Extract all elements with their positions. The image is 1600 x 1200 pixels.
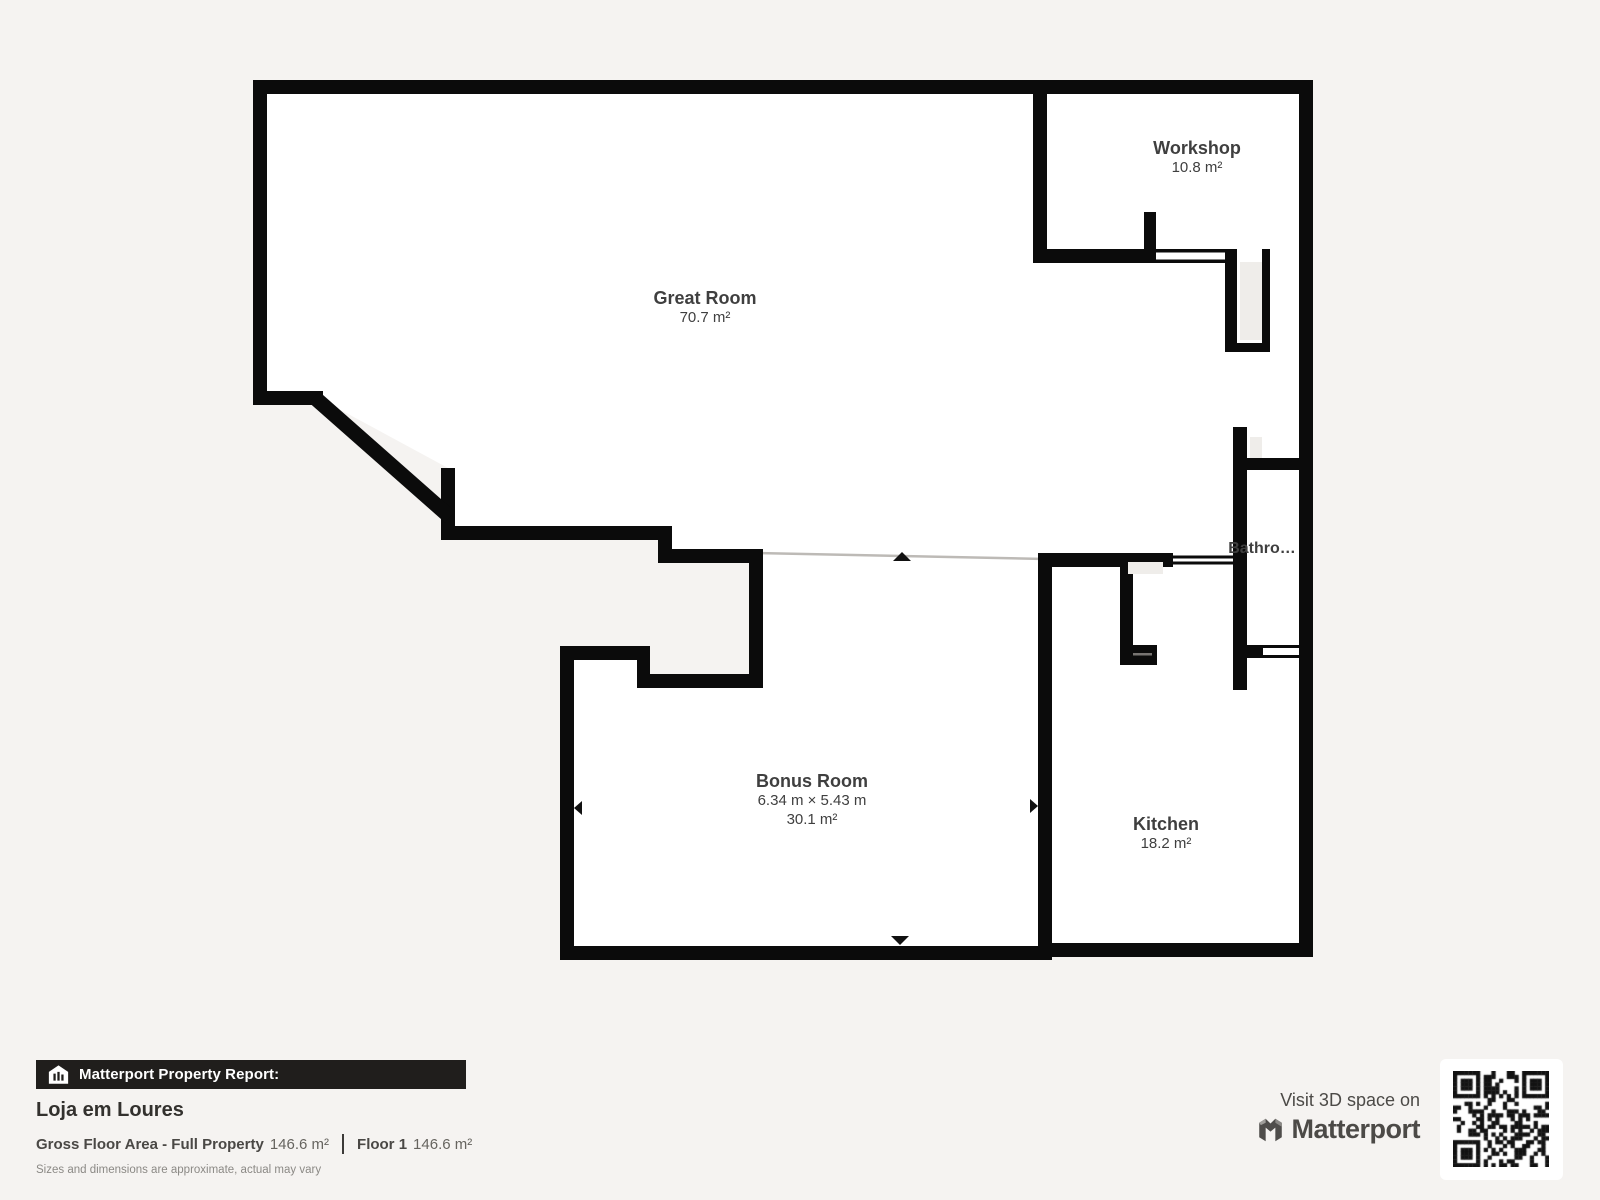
room-name: Great Room <box>653 288 756 308</box>
gross-floor-area-value: 146.6 m² <box>270 1136 329 1153</box>
room-name: Kitchen <box>1133 814 1199 834</box>
report-header-label: Matterport Property Report: <box>79 1066 279 1083</box>
gross-floor-area-label: Gross Floor Area - Full Property <box>36 1136 264 1153</box>
bonus-room-fill <box>572 556 1045 946</box>
room-area: 30.1 m² <box>756 810 868 829</box>
qr-card <box>1440 1059 1563 1180</box>
room-area: 10.8 m² <box>1153 158 1241 177</box>
divider <box>342 1134 344 1154</box>
room-label-bonus-room: Bonus Room 6.34 m × 5.43 m 30.1 m² <box>756 771 868 829</box>
room-dimensions: 6.34 m × 5.43 m <box>756 791 868 810</box>
kitchen-fill <box>1052 560 1299 946</box>
room-area: 70.7 m² <box>653 308 756 327</box>
disclaimer-text: Sizes and dimensions are approximate, ac… <box>36 1164 321 1176</box>
visit-3d-text: Visit 3D space on <box>1256 1090 1421 1111</box>
room-label-great-room: Great Room 70.7 m² <box>653 288 756 327</box>
brand-block: Visit 3D space on Matterport <box>1256 1090 1421 1145</box>
matterport-m-icon <box>1256 1116 1285 1144</box>
floorplan <box>0 0 1600 1200</box>
property-name: Loja em Loures <box>36 1099 184 1122</box>
qr-code <box>1453 1071 1549 1167</box>
room-area: 18.2 m² <box>1133 834 1199 853</box>
room-name: Bathro… <box>1228 540 1296 558</box>
room-name: Bonus Room <box>756 771 868 791</box>
matterport-logo: Matterport <box>1256 1114 1421 1145</box>
room-label-workshop: Workshop 10.8 m² <box>1153 138 1241 177</box>
room-label-kitchen: Kitchen 18.2 m² <box>1133 814 1199 853</box>
area-summary: Gross Floor Area - Full Property 146.6 m… <box>36 1134 472 1154</box>
floor-label: Floor 1 <box>357 1136 407 1153</box>
house-icon <box>48 1064 69 1085</box>
floor-value: 146.6 m² <box>413 1136 472 1153</box>
room-label-bathroom: Bathro… <box>1228 540 1296 558</box>
room-name: Workshop <box>1153 138 1241 158</box>
report-header-bar: Matterport Property Report: <box>36 1060 466 1089</box>
matterport-wordmark: Matterport <box>1292 1114 1421 1145</box>
